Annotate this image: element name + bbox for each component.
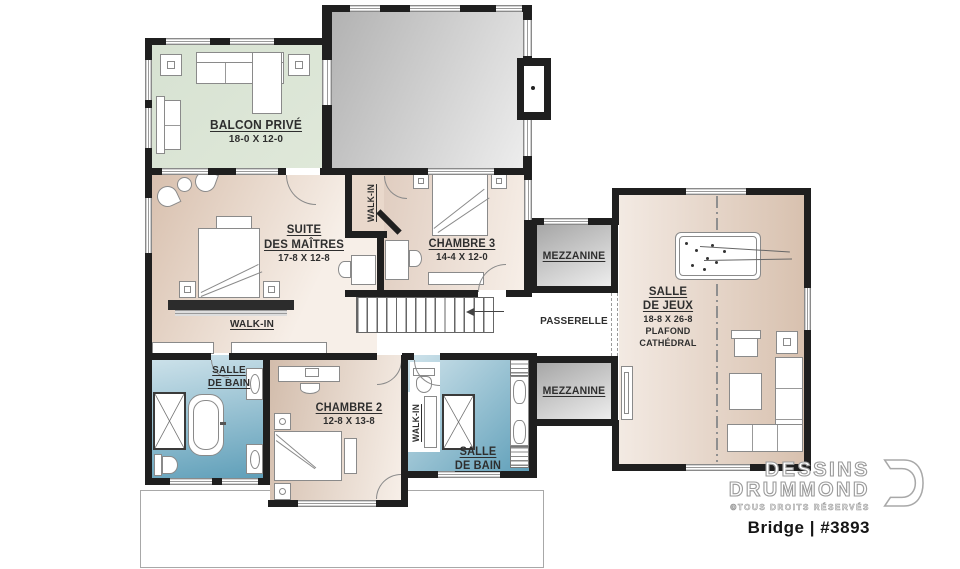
side-table-inner — [783, 338, 791, 346]
room-label: SUITE — [287, 222, 322, 236]
room-label: DE BAIN — [455, 460, 501, 472]
wall — [145, 38, 152, 485]
desk-chair — [300, 383, 320, 394]
bridge-dash — [611, 293, 612, 356]
room-dims: 12-8 X 13-8 — [323, 416, 375, 427]
window — [145, 108, 152, 148]
floor-plan: BALCON PRIVÉ 18-0 X 12-0 SUITE DES MAÎTR… — [0, 0, 960, 569]
wall — [345, 175, 352, 237]
bed — [274, 431, 342, 481]
window — [236, 168, 278, 175]
window — [162, 168, 208, 175]
brand-name-line2: DRUMMOND — [690, 480, 870, 500]
room-label: SALLE — [212, 364, 246, 376]
nightstand-inner — [418, 178, 424, 184]
wall — [612, 420, 619, 471]
loveseat-seat — [164, 100, 181, 150]
window — [804, 288, 811, 330]
bench — [428, 272, 484, 285]
wall — [263, 355, 270, 485]
toilet-bowl — [162, 456, 178, 474]
wall — [440, 353, 537, 360]
side-table-inner — [295, 61, 303, 69]
bed-bench — [344, 438, 357, 474]
sectional-sofa — [727, 424, 803, 452]
window — [350, 5, 380, 12]
window — [523, 120, 532, 156]
sink — [513, 380, 526, 404]
dresser-base — [175, 310, 287, 316]
room-label: PASSERELLE — [540, 315, 608, 327]
wall — [529, 286, 618, 293]
window — [230, 38, 274, 45]
wall — [377, 238, 384, 297]
room-label: DE JEUX — [643, 298, 693, 312]
brand-d-logo-icon — [876, 458, 924, 508]
nightstand-inner — [184, 286, 191, 293]
room-label: WALK-IN — [411, 404, 421, 442]
window — [145, 60, 152, 100]
window — [170, 478, 212, 485]
pool-table-rail — [679, 236, 757, 276]
side-table-inner — [167, 61, 175, 69]
room-label: DES MAÎTRES — [264, 237, 344, 251]
room-label: CHAMBRE 3 — [429, 238, 496, 250]
desk — [385, 240, 409, 280]
wall — [612, 188, 619, 225]
desk — [351, 255, 376, 285]
nightstand-inner — [279, 418, 286, 425]
nightstand-inner — [279, 488, 286, 495]
window — [686, 188, 746, 195]
dresser — [168, 300, 294, 310]
wall — [345, 290, 478, 297]
wall — [145, 353, 211, 360]
wall — [804, 188, 811, 288]
window — [410, 5, 460, 12]
room-dims: 18-0 X 12-0 — [229, 133, 283, 145]
room-label: SALLE — [649, 284, 687, 298]
window — [322, 60, 332, 105]
shower — [442, 394, 475, 450]
desk-chair — [338, 261, 351, 278]
round-table — [177, 177, 192, 192]
wall — [229, 353, 377, 360]
window — [438, 471, 500, 478]
direction-arrow — [466, 308, 474, 316]
sofa-chaise — [252, 52, 282, 114]
nightstand-inner — [496, 178, 502, 184]
nightstand-inner — [268, 286, 275, 293]
window — [524, 180, 532, 220]
window — [523, 20, 532, 56]
wall — [529, 356, 618, 363]
wall — [529, 218, 537, 293]
fireplace-dot — [531, 86, 535, 90]
wall — [345, 231, 387, 238]
room-label: BALCON PRIVÉ — [210, 118, 302, 132]
room-label: WALK-IN — [230, 318, 274, 330]
wall — [804, 330, 811, 471]
door-gap — [286, 168, 320, 175]
room-label: MEZZANINE — [543, 385, 606, 397]
room-label: SALLE — [460, 446, 497, 458]
linen-closet — [510, 446, 529, 468]
plan-model-number: Bridge | #3893 — [690, 518, 870, 538]
room-note: PLAFOND — [646, 326, 691, 337]
wall — [611, 218, 618, 293]
desk-chair — [409, 250, 422, 267]
room-label: DE BAIN — [208, 377, 250, 389]
logo-block: DESSINS DRUMMOND ©TOUS DROITS RÉSERVÉS B… — [690, 460, 870, 538]
linen-closet — [510, 358, 529, 376]
room-label: WALK-IN — [366, 184, 376, 222]
room-note: CATHÉDRAL — [639, 338, 696, 349]
window — [544, 218, 588, 225]
gray-room-floor — [332, 12, 523, 168]
bridge-dash — [617, 293, 618, 356]
pool-balls — [685, 242, 688, 245]
brand-name-line1: DESSINS — [690, 460, 870, 480]
armchair-seat — [734, 338, 758, 357]
coffee-table — [729, 373, 762, 410]
tv-unit-inner — [624, 372, 629, 414]
window — [222, 478, 258, 485]
toilet-tank — [154, 454, 162, 476]
wall — [611, 356, 618, 426]
sink — [250, 450, 260, 469]
room-label: MEZZANINE — [543, 250, 606, 262]
wall — [401, 355, 408, 507]
brand-rights: ©TOUS DROITS RÉSERVÉS — [690, 503, 870, 512]
shower — [153, 392, 186, 450]
direction-arrow-line — [474, 311, 504, 312]
room-dims: 18-8 X 26-8 — [643, 314, 692, 325]
closet-shelf — [424, 396, 437, 448]
bathtub-faucet — [220, 422, 226, 425]
desk-monitor — [305, 368, 319, 377]
bathtub-inner — [193, 400, 219, 450]
window — [166, 38, 210, 45]
window — [428, 168, 494, 175]
sink — [513, 420, 526, 444]
window — [496, 5, 522, 12]
window — [145, 198, 152, 253]
sink — [250, 374, 260, 394]
room-label: CHAMBRE 2 — [316, 402, 383, 414]
wall — [529, 353, 537, 478]
room-dims: 14-4 X 12-0 — [436, 252, 488, 263]
window — [298, 500, 376, 507]
wall — [529, 419, 618, 426]
room-dims: 17-8 X 12-8 — [278, 253, 330, 264]
